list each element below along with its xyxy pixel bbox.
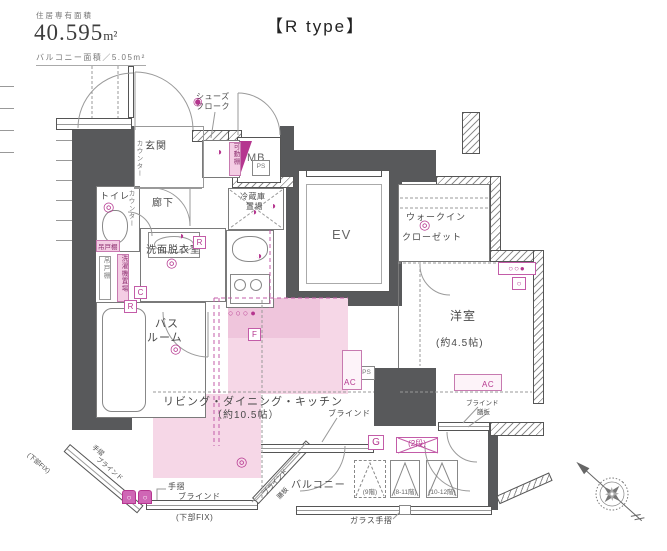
two-tier-box: (2段) (396, 437, 438, 453)
outlet-cluster-icon: ○○● (498, 262, 536, 275)
outlet-icon: ◑ (256, 252, 262, 262)
label-hanging-cupboard-tag: 吊戸棚 (96, 240, 120, 252)
equipment-icon: ○ (122, 490, 136, 504)
equipment-icons: ○ ○ (122, 490, 152, 504)
label-fridge-1: 冷蔵庫 (240, 192, 266, 201)
hatch-box-8-11f: (8-11階) (390, 460, 420, 498)
north-compass-icon (566, 450, 653, 533)
ceiling-light-icon: ◎ (166, 256, 177, 269)
marker-g: G (368, 435, 384, 450)
label-hallway: 廊下 (152, 198, 174, 210)
label-movable-shelf: 可動棚 (229, 142, 241, 176)
label-lower-fix: (下部FIX) (176, 513, 213, 522)
label-washer-place: 洗濯機置場 (117, 254, 129, 302)
label-ldk: リビング・ダイニング・キッチン (163, 396, 343, 409)
label-genkan: 玄関 (145, 141, 167, 153)
glass-rail-icon (399, 505, 411, 515)
marker-c: C (134, 286, 147, 299)
marker-r: R (193, 236, 206, 249)
outlet-box-icon: ○ (512, 277, 526, 290)
label-handrail: 手摺 (168, 482, 185, 491)
label-bath-1: バス (155, 318, 179, 331)
label-western-room-size: (約4.5帖) (436, 338, 484, 350)
label-blind: ブラインド (328, 409, 371, 418)
door-arcs (78, 72, 477, 491)
label-ldk-size: （約10.5帖） (212, 410, 279, 422)
outlet-icon: ◑ (216, 148, 222, 158)
marker-r2: R (124, 300, 137, 313)
hatch-box-9f: (9階) (354, 460, 386, 498)
label-counter: カウンター (133, 140, 143, 180)
label-blind-2: ブラインド (178, 492, 221, 501)
hatch-box-10-12f: (10-12階) (426, 460, 458, 498)
leader-lines (157, 112, 486, 519)
ceiling-light-icon: ◎ (103, 200, 114, 213)
label-wic-1: ウォークイン (406, 212, 466, 222)
label-wic-2: クローゼット (402, 232, 462, 242)
floor-plan-page: 住居専有面積 40.595m² バルコニー面積／5.05m² 【R type】 (0, 0, 667, 551)
ac-label-2: AC (344, 378, 356, 387)
label-hanging-cupboard: 吊戸棚 (99, 256, 111, 300)
marker-f: F (248, 328, 261, 341)
outlet-row-icon: ○○○● (228, 309, 258, 318)
equipment-icon: ○ (138, 490, 152, 504)
ac-box (454, 374, 502, 391)
label-western-room: 洋室 (450, 310, 476, 324)
label-ps: PS (252, 160, 270, 176)
ceiling-light-icon: ◎ (236, 455, 247, 468)
outlet-icon: ◑ (251, 208, 257, 218)
doorbell-icon: ◉ (193, 97, 203, 108)
label-elevator: EV (332, 228, 351, 243)
label-blind-3: ブラインド (466, 400, 499, 407)
dashed-lines (92, 66, 533, 498)
outlet-icon: ◑ (270, 202, 276, 212)
label-balcony: バルコニー (291, 480, 346, 492)
ac-label: AC (482, 380, 494, 389)
ceiling-light-icon: ◎ (170, 342, 181, 355)
outlet-icon: ◑ (178, 232, 184, 242)
ceiling-light-icon: ◎ (419, 218, 430, 231)
label-sill-board: 膳板 (477, 409, 490, 416)
label-glass-handrail: ガラス手摺 (350, 516, 392, 525)
